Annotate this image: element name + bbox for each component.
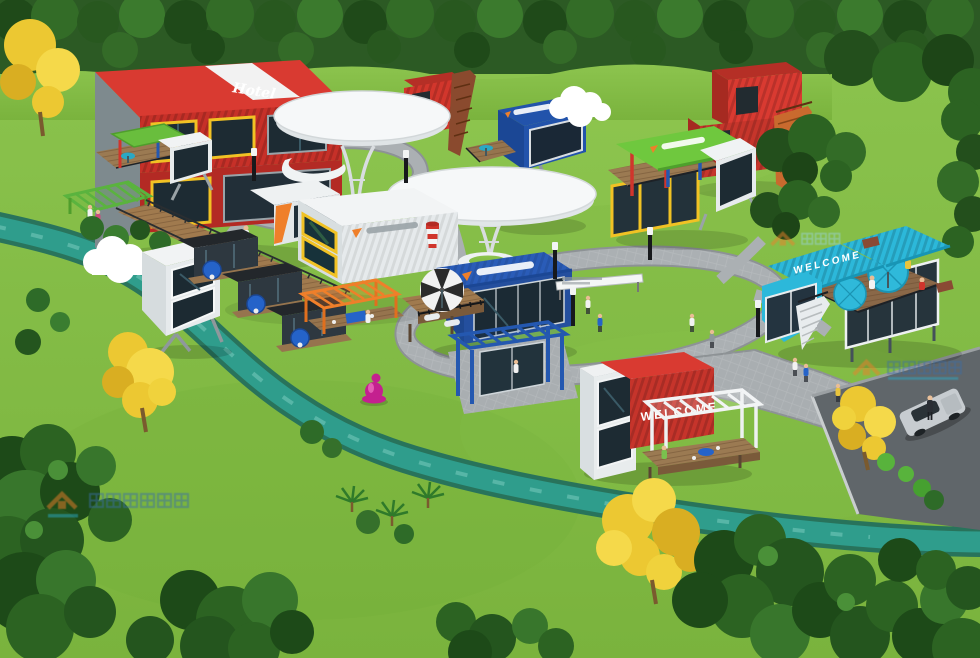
striped-umbrella <box>420 268 464 312</box>
scene-svg: Hotel <box>0 0 980 658</box>
tree-cluster-bottom-left <box>0 424 132 658</box>
terrace-umbrella-2 <box>834 278 866 310</box>
render-canvas: Hotel <box>0 0 980 658</box>
white-tower <box>580 360 636 480</box>
